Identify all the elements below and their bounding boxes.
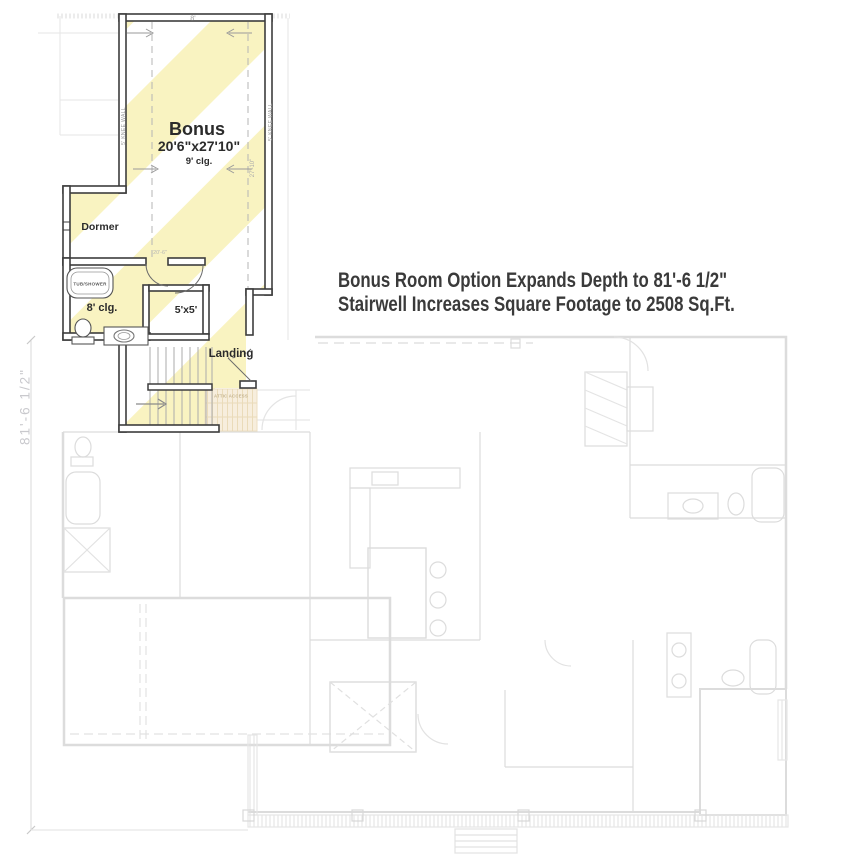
- plan-annotation: Bonus Room Option Expands Depth to 81'-6…: [338, 269, 682, 316]
- annotation-line-1: Bonus Room Option Expands Depth to 81'-6…: [338, 269, 682, 293]
- attic-access-label: ATTIC ACCESS: [206, 394, 256, 399]
- floor-plan-drawing: [0, 0, 850, 861]
- dormer-label: Dormer: [60, 221, 140, 233]
- stair-landing-bar: [148, 384, 212, 390]
- bath-ceiling-height: 8' clg.: [62, 302, 142, 314]
- knee-wall-label-left: 5' KNEE WALL: [120, 99, 126, 153]
- floor-plan-page: Bonus 20'6"x27'10" 9' clg. Dormer 8' clg…: [0, 0, 850, 861]
- dimension-27-10: 27'-10": [249, 145, 256, 191]
- overall-depth-dimension: 81'-6 1/2": [18, 337, 33, 477]
- knee-wall-label-right: 5' KNEE WALL: [267, 95, 273, 149]
- toilet: [75, 319, 91, 337]
- bonus-ceiling-height: 9' clg.: [159, 156, 239, 167]
- annotation-line-2: Stairwell Increases Square Footage to 25…: [338, 293, 682, 317]
- tub-shower-label: TUB/SHOWER: [68, 282, 113, 287]
- dimension-20-6: 20'-6": [139, 249, 181, 255]
- bonus-room-label: Bonus: [137, 119, 257, 140]
- landing-label: Landing: [186, 348, 276, 360]
- closet-size-label: 5'x5': [146, 304, 226, 316]
- dimension-8ft: 8': [177, 14, 209, 22]
